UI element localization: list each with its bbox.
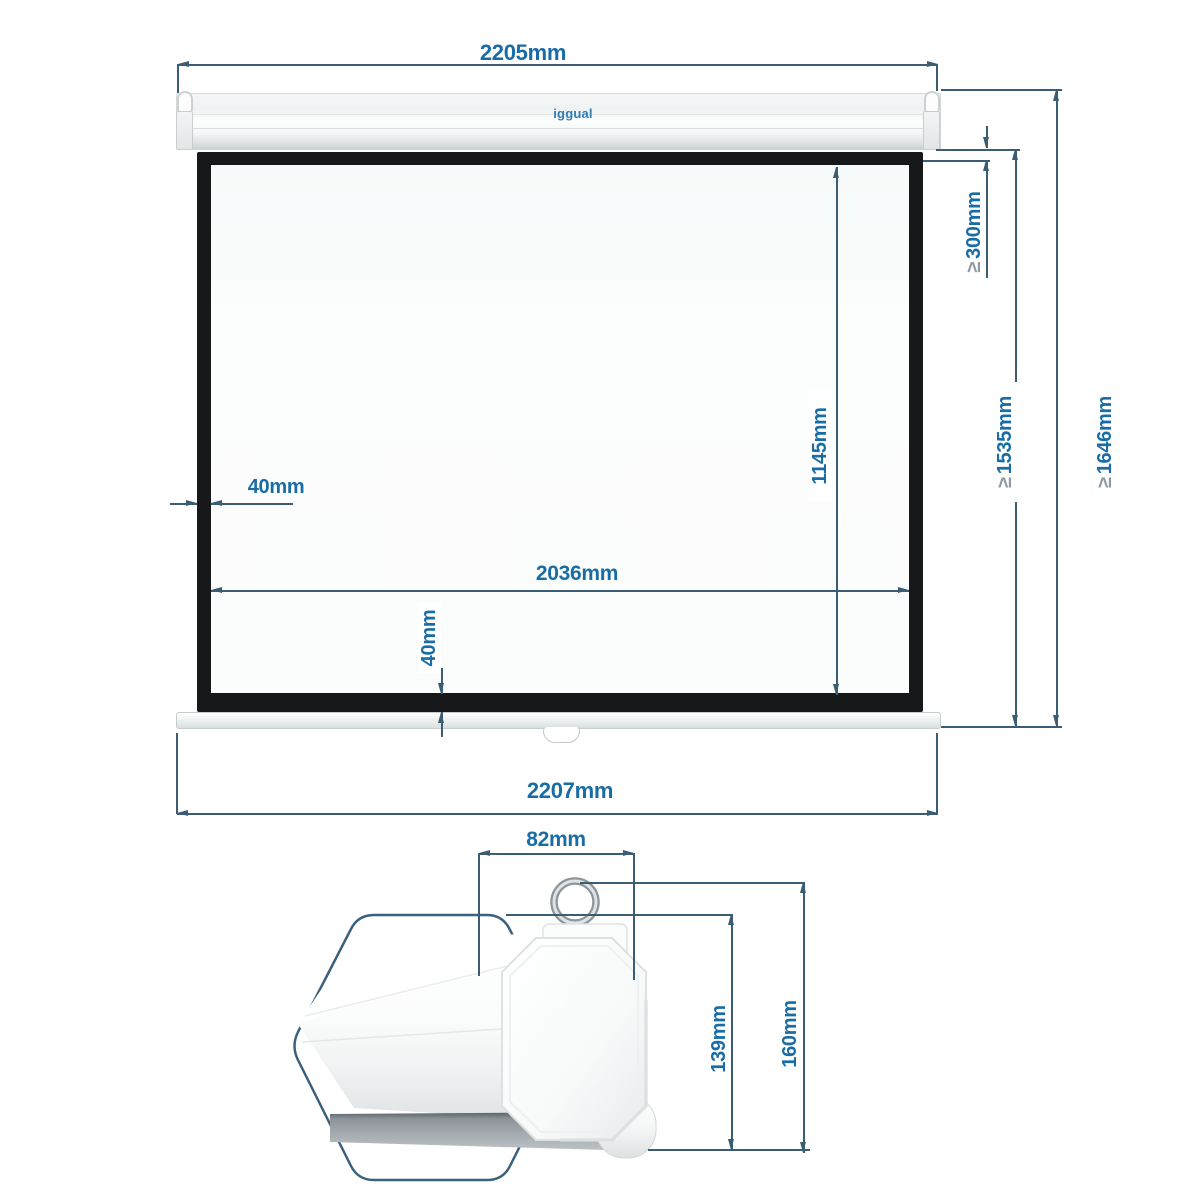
arrow-up-icon xyxy=(728,914,734,925)
arrow-left-icon xyxy=(479,850,490,856)
dim-case-height-label: 139mm xyxy=(707,989,731,1089)
hanging-ring-highlight xyxy=(554,881,596,923)
dim-total-depth-line xyxy=(803,882,805,1153)
dim-total-depth-label: 160mm xyxy=(778,984,802,1084)
dim-case-height-line xyxy=(731,914,733,1150)
extension-line-case-top-side xyxy=(506,914,733,916)
arrow-down-icon xyxy=(800,1142,806,1153)
extension-line xyxy=(633,853,635,980)
arrow-up-icon xyxy=(800,882,806,893)
case-end-cap xyxy=(502,938,646,1140)
dim-case-width-line xyxy=(479,853,634,855)
extension-line-ring-top xyxy=(580,882,805,884)
side-view-illustration xyxy=(0,0,1200,1200)
extension-line xyxy=(478,853,480,976)
technical-drawing-canvas: iggual 2205mm ≥ 300mm ≥ 1535mm ≥ 1646mm xyxy=(0,0,1200,1200)
dim-case-width-label: 82mm xyxy=(496,828,616,852)
extension-line-bottom-side xyxy=(648,1149,810,1151)
